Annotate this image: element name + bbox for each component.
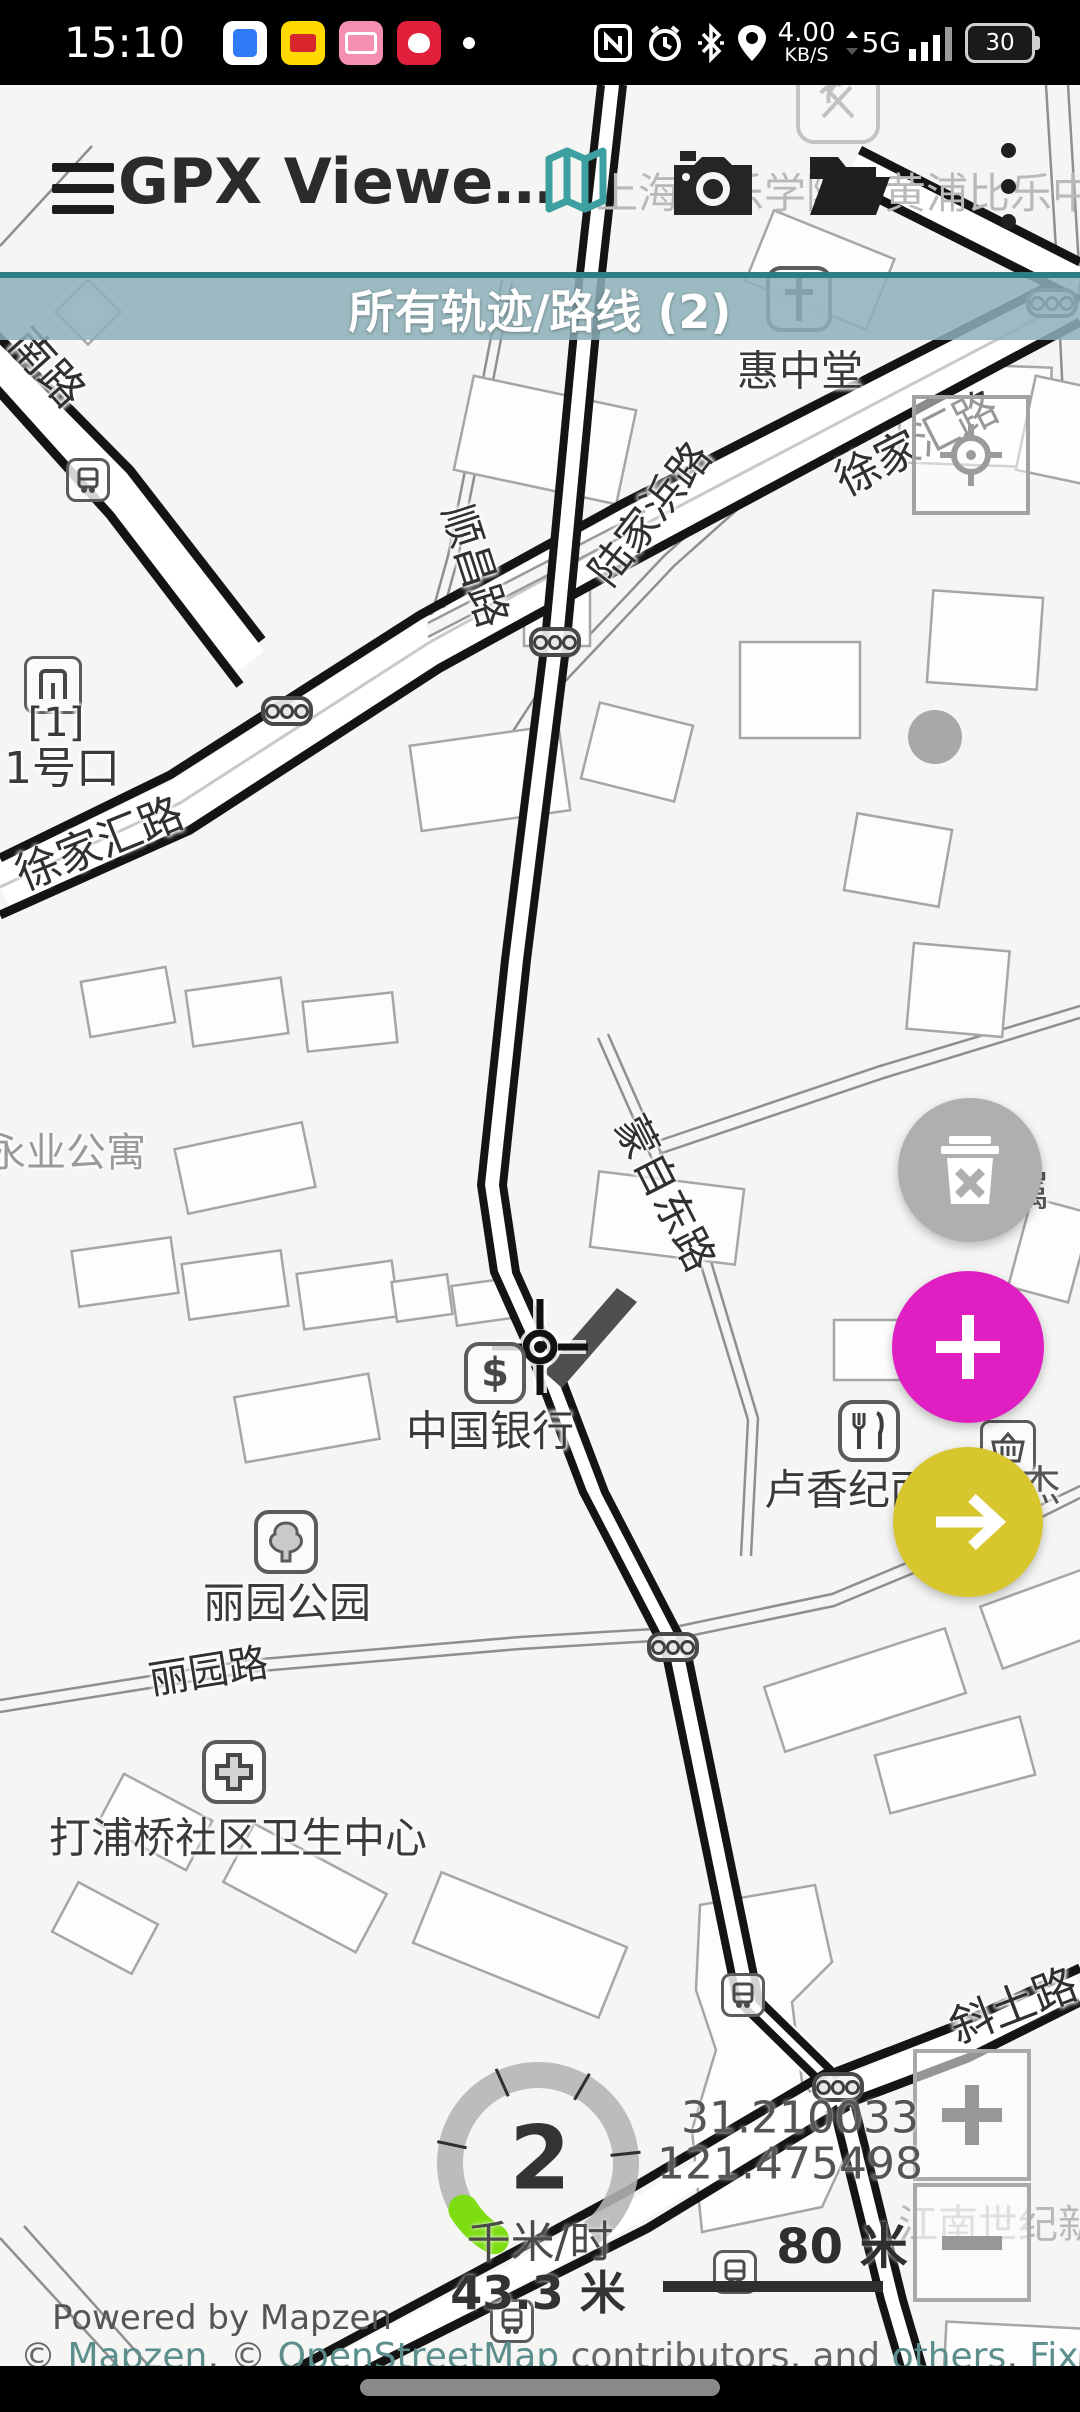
- network-type: 5G: [843, 26, 901, 59]
- powered-by: Powered by Mapzen: [52, 2298, 392, 2338]
- map-label-bank: 中国银行: [406, 1398, 574, 1459]
- notification-app-icon-bilibili: [339, 21, 383, 65]
- toolbar: GPX Viewe…: [0, 85, 1080, 255]
- overflow-menu-button[interactable]: [988, 143, 1028, 229]
- open-file-button[interactable]: [806, 149, 892, 223]
- gesture-nav-bar: [0, 2366, 1080, 2412]
- bluetooth-icon: [696, 23, 726, 63]
- bus-stop-icon: [721, 1973, 765, 2017]
- bank-icon: $: [464, 1342, 526, 1404]
- plus-icon: [928, 1307, 1008, 1387]
- map-label-church: 惠中堂: [737, 338, 863, 399]
- map-label-apartment: 永业公寓: [0, 1120, 146, 1178]
- battery-indicator: 30: [965, 23, 1040, 63]
- longitude-value: 121.475498: [657, 2139, 923, 2190]
- delete-track-fab[interactable]: [898, 1098, 1042, 1242]
- camera-icon: [672, 151, 754, 217]
- nfc-icon: [594, 24, 632, 62]
- status-bar: 15:10 4.00 KB/S 5G: [0, 0, 1080, 85]
- speed-value: 2: [509, 2107, 570, 2210]
- traffic-light-icon: [529, 627, 581, 657]
- map-gray-dot: [908, 710, 962, 764]
- park-tree-icon: [254, 1510, 318, 1574]
- alarm-icon: [646, 24, 684, 62]
- notification-app-icon-xianyu: [281, 21, 325, 65]
- bus-stop-icon: [66, 458, 110, 502]
- notification-app-icon-red: [397, 21, 441, 65]
- app-title: GPX Viewe…: [118, 145, 555, 218]
- status-time: 15:10: [64, 18, 185, 67]
- camera-button[interactable]: [672, 151, 754, 221]
- zoom-out-button[interactable]: [913, 2183, 1031, 2302]
- altitude-value: 43.3 米: [450, 2257, 626, 2323]
- trash-x-icon: [937, 1134, 1003, 1206]
- notification-app-icon-chat: [223, 21, 267, 65]
- map-manager-button[interactable]: [542, 147, 610, 219]
- tracks-banner[interactable]: 所有轨迹/路线 (2): [0, 272, 1080, 340]
- scale-bar: [663, 2281, 883, 2292]
- scale-text: 80 米: [776, 2207, 908, 2277]
- traffic-light-icon: [647, 1632, 699, 1662]
- zoom-in-button[interactable]: [913, 2049, 1031, 2181]
- overflow-dots-icon: [1001, 143, 1016, 158]
- tracks-banner-text: 所有轨迹/路线 (2): [349, 276, 732, 342]
- notification-dot: [463, 37, 475, 49]
- location-pin-icon: [736, 23, 768, 63]
- menu-button[interactable]: [52, 163, 116, 215]
- map-label-exit-name: 1号口: [4, 732, 120, 796]
- battery-percent: 30: [985, 30, 1014, 56]
- restaurant-icon: [838, 1400, 900, 1462]
- gpx-viewer-screen: $ 上海音乐学院: [0, 0, 1080, 2412]
- arrow-right-icon: [926, 1480, 1010, 1564]
- signal-bars-icon: [909, 25, 953, 61]
- network-speed: 4.00 KB/S: [778, 20, 836, 65]
- folder-open-icon: [806, 149, 892, 219]
- traffic-light-icon: [261, 696, 313, 726]
- minus-icon: [936, 2207, 1008, 2279]
- hospital-cross-icon: [202, 1740, 266, 1804]
- plus-icon: [936, 2079, 1008, 2151]
- map-label-health-center: 打浦桥社区卫生中心: [49, 1805, 427, 1866]
- hamburger-icon: [52, 163, 116, 214]
- add-fab[interactable]: [892, 1271, 1044, 1423]
- my-location-icon: [936, 420, 1006, 490]
- gesture-pill[interactable]: [360, 2379, 720, 2396]
- map-label-park: 丽园公园: [203, 1570, 371, 1631]
- map-icon: [542, 147, 610, 215]
- latitude-value: 31.210033: [681, 2093, 919, 2144]
- navigate-fab[interactable]: [893, 1447, 1043, 1597]
- my-location-button[interactable]: [912, 395, 1030, 515]
